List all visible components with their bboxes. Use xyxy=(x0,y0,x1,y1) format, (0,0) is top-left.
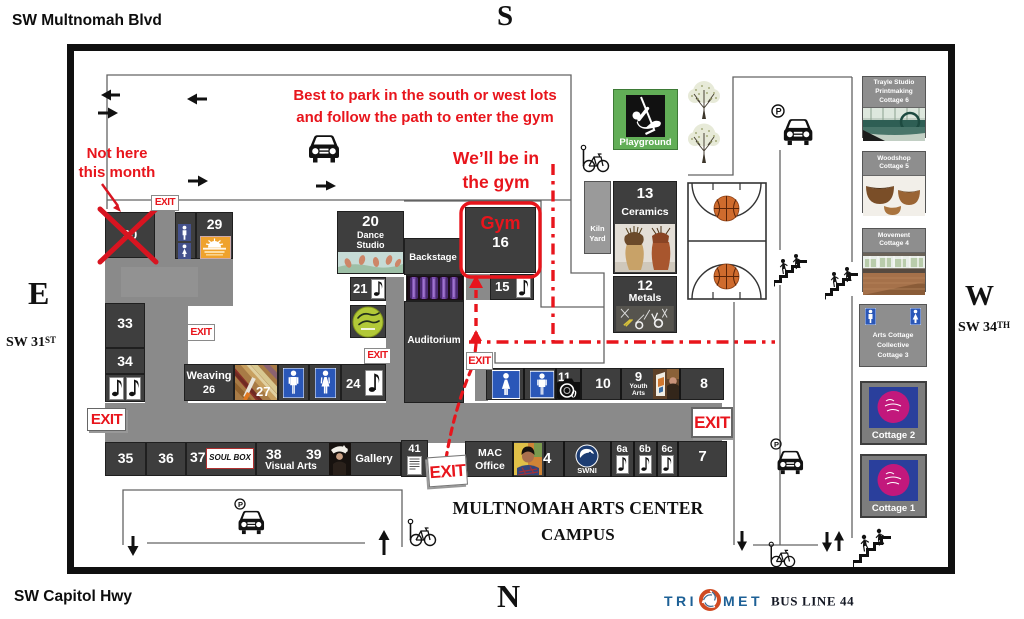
svg-text:P: P xyxy=(238,500,243,509)
svg-text:P: P xyxy=(774,440,779,449)
svg-text:0: 0 xyxy=(571,389,577,401)
svg-text:P: P xyxy=(776,106,782,116)
svg-text:BUS LINE 44: BUS LINE 44 xyxy=(771,594,854,609)
svg-text:MET: MET xyxy=(723,593,763,609)
svg-text:TRI: TRI xyxy=(664,593,697,609)
